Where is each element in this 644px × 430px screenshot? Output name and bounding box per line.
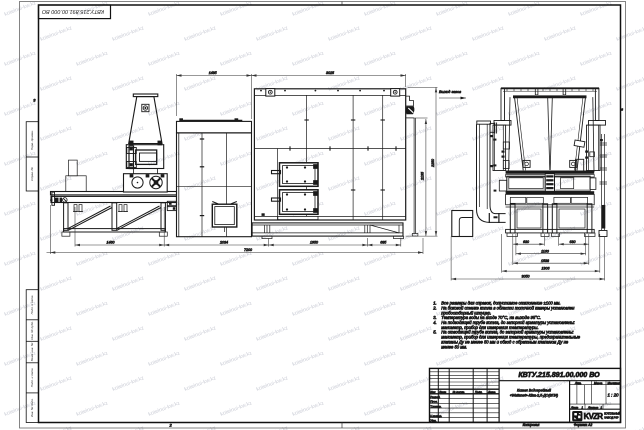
svg-text:685: 685 <box>380 241 386 245</box>
svg-text:1160: 1160 <box>541 249 549 253</box>
svg-text:2250: 2250 <box>431 159 435 168</box>
svg-text:630: 630 <box>523 240 529 244</box>
svg-text:2135: 2135 <box>420 172 424 181</box>
svg-text:KVZR: KVZR <box>584 412 604 421</box>
svg-text:Лит.: Лит. <box>574 381 582 385</box>
svg-text:1460: 1460 <box>107 241 115 245</box>
svg-text:Листов: Листов <box>587 405 599 409</box>
svg-text:Инв. № дубл.: Инв. № дубл. <box>30 321 34 340</box>
svg-text:630: 630 <box>570 240 576 244</box>
svg-text:4.: 4. <box>433 320 436 325</box>
svg-text:Подп.: Подп. <box>475 390 483 394</box>
svg-text:№ докум.: № докум. <box>453 390 466 394</box>
svg-text:Разраб.: Разраб. <box>430 395 440 399</box>
svg-text:в: в <box>621 107 623 112</box>
svg-text:Подп. и дата: Подп. и дата <box>30 295 34 314</box>
svg-text:Утв.: Утв. <box>430 419 437 423</box>
svg-text:«Wattsnet»-КВт-2,5-ДО(ВПИ): «Wattsnet»-КВт-2,5-ДО(ВПИ) <box>510 394 558 398</box>
svg-text:Инв. № подл.: Инв. № подл. <box>30 398 34 417</box>
svg-text:2.: 2. <box>432 305 436 310</box>
svg-text:ЗАВОД РЗР: ЗАВОД РЗР <box>604 415 619 419</box>
svg-text:КВТУ.215.891.00.000 ВО: КВТУ.215.891.00.000 ВО <box>41 8 104 14</box>
svg-text:Взам. инв. №: Взам. инв. № <box>30 342 34 361</box>
svg-text:3050: 3050 <box>522 275 530 279</box>
svg-text:1538: 1538 <box>541 259 549 263</box>
svg-text:Копировал: Копировал <box>523 423 540 427</box>
svg-text:5.: 5. <box>433 330 436 335</box>
svg-text:1485: 1485 <box>209 71 217 75</box>
svg-text:Масса: Масса <box>594 381 603 385</box>
svg-text:1 : 20: 1 : 20 <box>608 393 620 398</box>
svg-text:2034: 2034 <box>219 241 228 245</box>
svg-text:Справ. №: Справ. № <box>30 166 34 180</box>
svg-text:Дата: Дата <box>487 390 496 394</box>
svg-text:Т.контр.: Т.контр. <box>430 404 442 408</box>
svg-text:менее 50 мм.: менее 50 мм. <box>441 344 467 349</box>
svg-text:Выход газов: Выход газов <box>439 90 461 94</box>
svg-text:Подп. и дата: Подп. и дата <box>30 368 34 387</box>
svg-text:1950: 1950 <box>310 241 318 245</box>
svg-text:Лист: Лист <box>570 405 579 409</box>
svg-text:Перв. примен.: Перв. примен. <box>30 130 34 150</box>
svg-text:КВТУ.215.891.00.000 ВО: КВТУ.215.891.00.000 ВО <box>518 371 600 379</box>
svg-text:Масштаб: Масштаб <box>608 381 621 385</box>
svg-text:1906: 1906 <box>542 267 550 271</box>
svg-text:КОТЕЛЬНЫЙ: КОТЕЛЬНЫЙ <box>604 412 620 416</box>
svg-text:7200: 7200 <box>244 248 252 252</box>
svg-text:3025: 3025 <box>326 71 334 75</box>
svg-text:Котел Водогрейный: Котел Водогрейный <box>517 389 551 393</box>
svg-text:Пров.: Пров. <box>430 400 438 404</box>
svg-text:Формат А2: Формат А2 <box>574 423 593 427</box>
svg-text:Изм: Изм <box>430 390 435 394</box>
svg-text:Н.контр.: Н.контр. <box>430 414 442 418</box>
svg-text:Лист: Лист <box>438 390 447 394</box>
